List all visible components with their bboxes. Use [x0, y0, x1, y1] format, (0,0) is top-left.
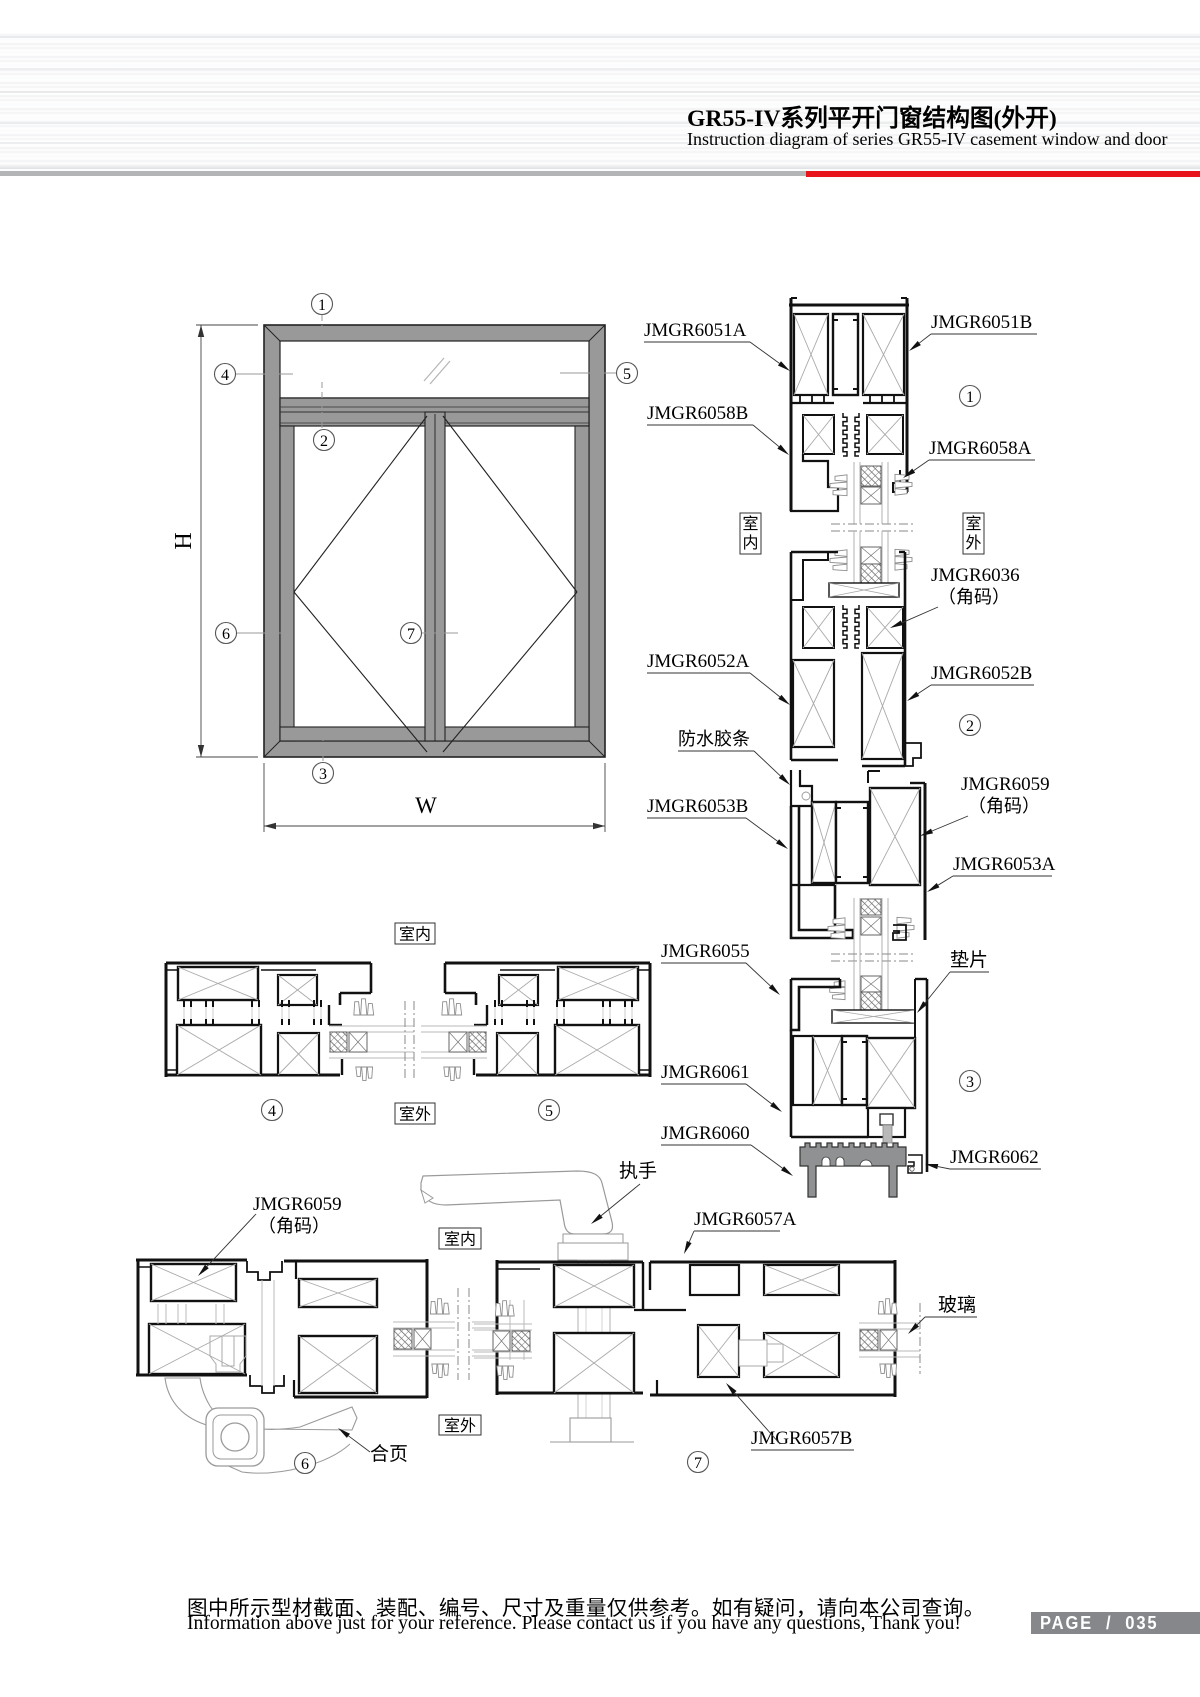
svg-text:垫片: 垫片 [950, 949, 988, 971]
svg-text:5: 5 [623, 366, 631, 383]
svg-text:合页: 合页 [370, 1443, 408, 1465]
svg-text:室: 室 [965, 515, 981, 533]
svg-text:室外: 室外 [399, 1105, 431, 1123]
svg-text:JMGR6061: JMGR6061 [661, 1062, 750, 1083]
svg-text:1: 1 [966, 389, 974, 406]
svg-text:7: 7 [407, 626, 415, 643]
svg-text:JMGR6059: JMGR6059 [253, 1194, 342, 1215]
svg-text:玻璃: 玻璃 [938, 1294, 976, 1316]
svg-text:（角码）: （角码） [258, 1216, 330, 1236]
svg-text:JMGR6060: JMGR6060 [661, 1123, 750, 1144]
svg-text:JMGR6058A: JMGR6058A [929, 438, 1032, 459]
svg-text:JMGR6059: JMGR6059 [961, 774, 1050, 795]
svg-text:7: 7 [694, 1455, 702, 1472]
svg-text:执手: 执手 [619, 1160, 657, 1182]
svg-text:JMGR6053A: JMGR6053A [953, 854, 1056, 875]
svg-text:H: H [171, 532, 197, 549]
svg-text:JMGR6055: JMGR6055 [661, 941, 750, 962]
svg-text:4: 4 [268, 1103, 276, 1120]
svg-text:JMGR6062: JMGR6062 [950, 1147, 1039, 1168]
svg-text:5: 5 [545, 1103, 553, 1120]
svg-text:3: 3 [319, 766, 327, 783]
svg-text:JMGR6057B: JMGR6057B [751, 1428, 852, 1449]
svg-text:（角码）: （角码） [938, 587, 1010, 607]
svg-text:2: 2 [966, 718, 974, 735]
svg-text:（角码）: （角码） [968, 796, 1040, 816]
svg-text:内: 内 [742, 534, 758, 552]
svg-text:4: 4 [221, 367, 229, 384]
svg-text:室内: 室内 [444, 1230, 476, 1248]
svg-text:JMGR6058B: JMGR6058B [647, 403, 748, 424]
svg-text:室: 室 [742, 515, 758, 533]
svg-text:1: 1 [318, 297, 326, 314]
svg-text:W: W [415, 793, 437, 818]
svg-text:6: 6 [222, 626, 230, 643]
svg-text:JMGR6051A: JMGR6051A [644, 320, 747, 341]
svg-text:6: 6 [301, 1456, 309, 1473]
svg-text:防水胶条: 防水胶条 [678, 729, 750, 749]
svg-text:室内: 室内 [399, 925, 431, 943]
svg-text:室外: 室外 [444, 1417, 476, 1435]
svg-text:JMGR6053B: JMGR6053B [647, 796, 748, 817]
svg-text:JMGR6052B: JMGR6052B [931, 663, 1032, 684]
svg-text:JMGR6052A: JMGR6052A [647, 651, 750, 672]
svg-text:3: 3 [966, 1074, 974, 1091]
svg-text:JMGR6036: JMGR6036 [931, 565, 1020, 586]
svg-text:JMGR6057A: JMGR6057A [694, 1209, 797, 1230]
svg-text:2: 2 [320, 433, 328, 450]
svg-text:外: 外 [965, 534, 981, 552]
svg-text:JMGR6051B: JMGR6051B [931, 312, 1032, 333]
